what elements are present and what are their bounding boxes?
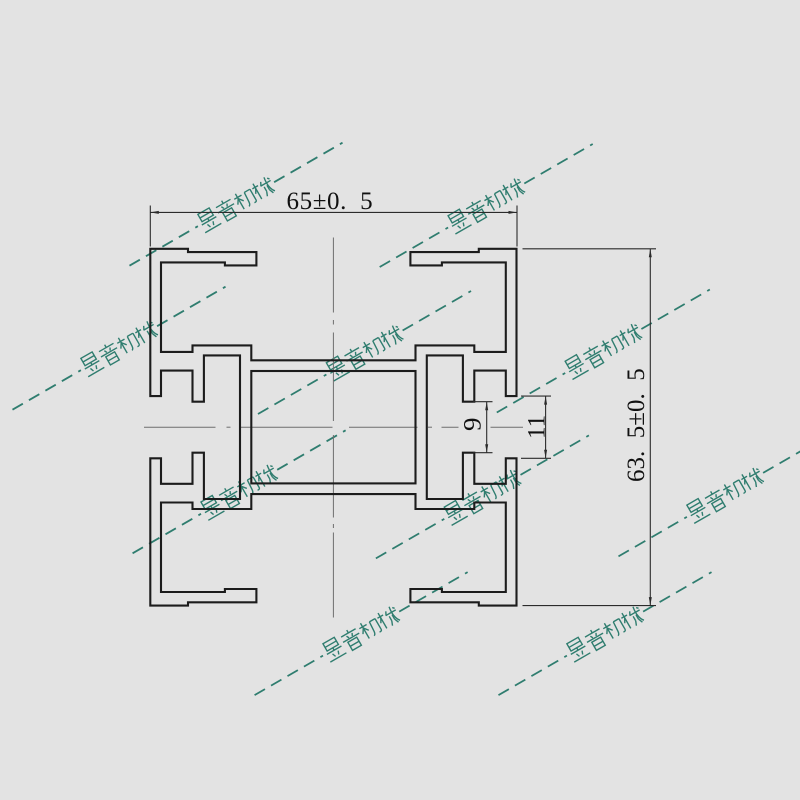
svg-text:65±0. 5: 65±0. 5 [287, 188, 374, 215]
svg-text:9: 9 [460, 418, 487, 432]
svg-text:11: 11 [524, 415, 551, 439]
svg-text:63. 5±0. 5: 63. 5±0. 5 [623, 368, 650, 482]
